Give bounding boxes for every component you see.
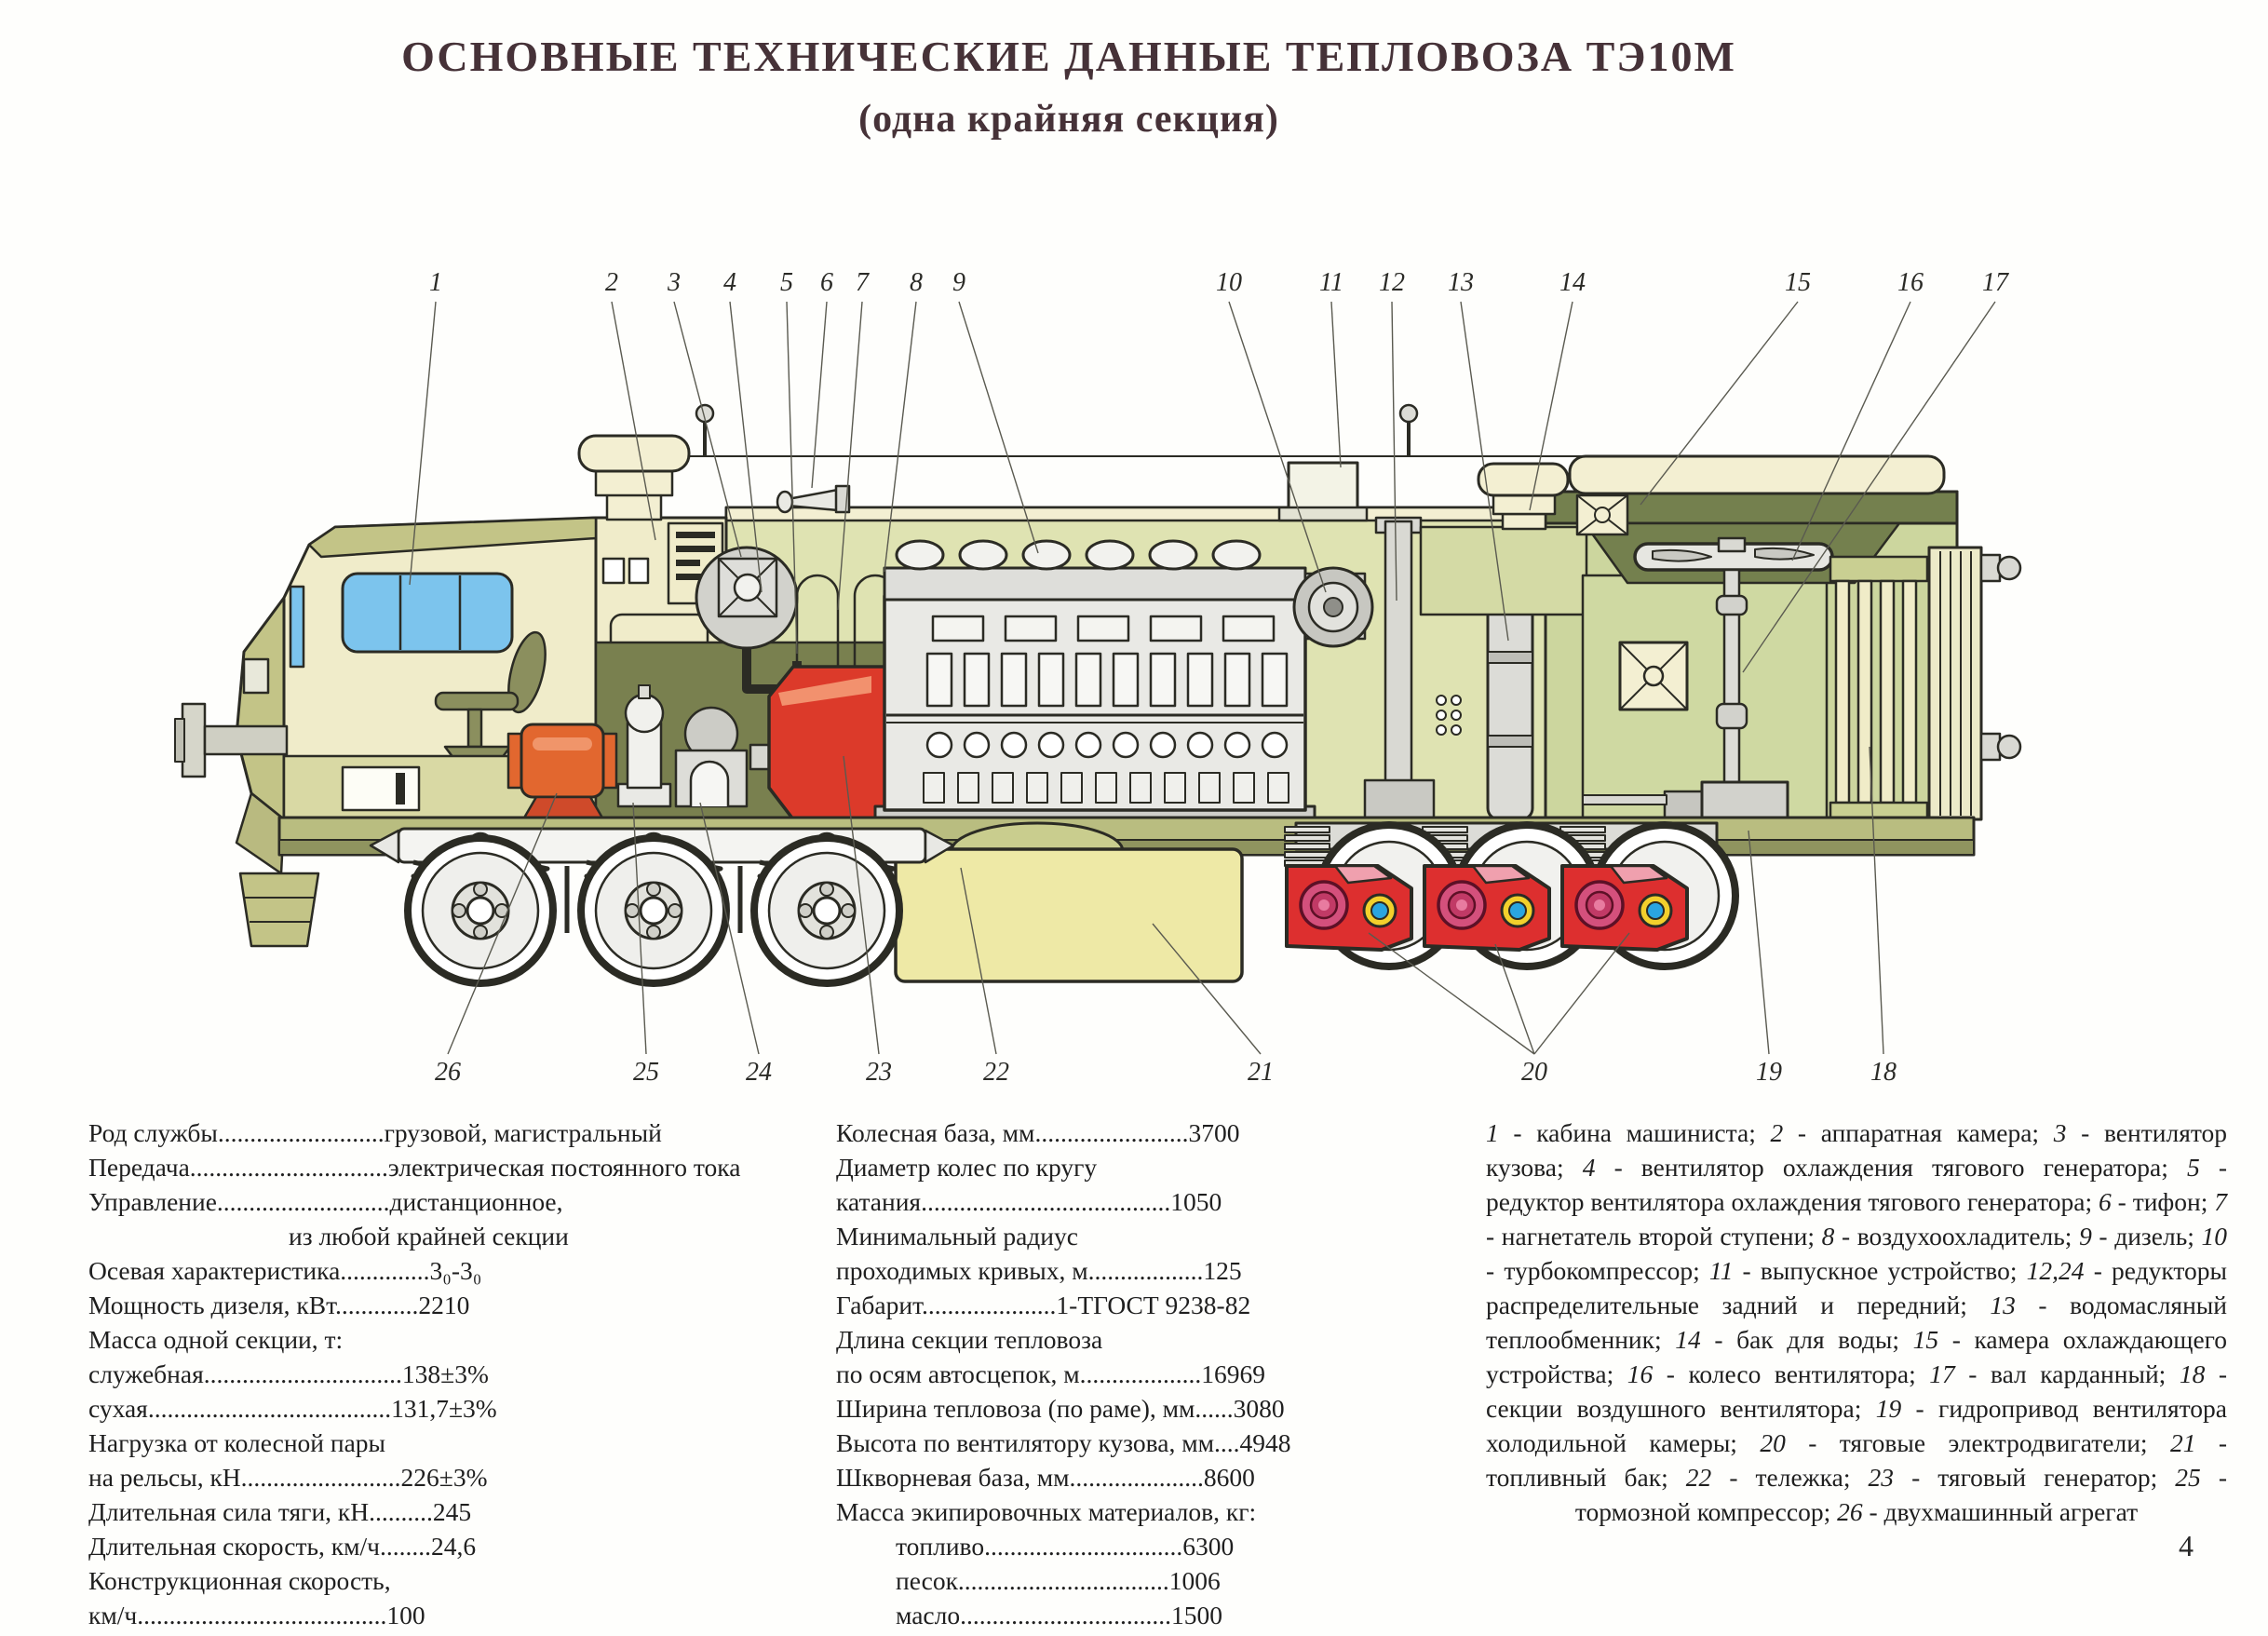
callout-number-18: 18 (1870, 1058, 1897, 1087)
leader-line-6 (812, 302, 827, 488)
roof-vent-front (579, 436, 689, 520)
legend-label: - вентилятор охлаждения тягового генерат… (1595, 1153, 2187, 1182)
page-number: 4 (2179, 1529, 2194, 1563)
legend-number: 17 (1929, 1359, 1955, 1388)
legend-label: - тележка; (1711, 1463, 1868, 1492)
nose (236, 598, 284, 819)
legend-number: 21 (2170, 1428, 2196, 1457)
spec-line: Управление...........................дис… (88, 1184, 796, 1219)
cab-side-window (343, 574, 512, 652)
legend-label: - дизель; (2092, 1222, 2202, 1251)
callout-number-8: 8 (910, 268, 923, 297)
callout-number-20: 20 (1521, 1058, 1547, 1087)
legend-number: 25 (2175, 1463, 2201, 1492)
spec-line: Осевая характеристика..............3₀-3₀ (88, 1253, 796, 1288)
callout-number-23: 23 (866, 1058, 892, 1087)
spec-line: Конструкционная скорость, (88, 1563, 796, 1598)
spec-line: Масса экипировочных материалов, кг: (836, 1494, 1432, 1529)
spec-line: на рельсы, кН.........................22… (88, 1460, 796, 1494)
water-tank (1421, 464, 1586, 615)
legend-label: - тяговый генератор; (1894, 1463, 2175, 1492)
spec-line: Минимальный радиус (836, 1219, 1432, 1253)
leader-line-19 (1748, 831, 1769, 1054)
callout-number-16: 16 (1897, 268, 1924, 297)
legend-number: 23 (1869, 1463, 1895, 1492)
spec-line: Нагрузка от колесной пары (88, 1426, 796, 1460)
spec-line: Длительная сила тяги, кН..........245 (88, 1494, 796, 1529)
spec-line: Шкворневая база, мм.....................… (836, 1460, 1432, 1494)
spec-line: масло.................................15… (836, 1598, 1432, 1632)
spec-line: Тип тележки............................б… (88, 1632, 796, 1636)
legend-number: 1 (1486, 1118, 1499, 1147)
legend-label: - кабина машиниста; (1499, 1118, 1771, 1147)
spec-line: Высота по вентилятору кузова, мм....4948 (836, 1426, 1432, 1460)
legend-number: 15 (1913, 1325, 1939, 1354)
spec-line: сухая...................................… (88, 1391, 796, 1426)
specs-column-1: Род службы..........................груз… (88, 1115, 796, 1636)
callout-number-10: 10 (1216, 268, 1242, 297)
coupler-plate (182, 704, 205, 777)
legend-number: 16 (1627, 1359, 1654, 1388)
headlight (244, 659, 268, 693)
legend-number: 13 (1990, 1291, 2016, 1319)
callout-number-15: 15 (1785, 268, 1811, 297)
rear-bogie (1285, 823, 1735, 967)
legend-number: 12,24 (2027, 1256, 2085, 1285)
callout-number-5: 5 (780, 268, 793, 297)
legend-number: 3 (2054, 1118, 2067, 1147)
front-bogie (371, 829, 953, 983)
leader-line-11 (1331, 302, 1341, 467)
legend-number: 20 (1760, 1428, 1786, 1457)
legend-number: 2 (1771, 1118, 1784, 1147)
front-steps (240, 873, 318, 946)
manual-page: ОСНОВНЫЕ ТЕХНИЧЕСКИЕ ДАННЫЕ ТЕПЛОВОЗА ТЭ… (0, 0, 2268, 1636)
legend-number: 6 (2099, 1187, 2112, 1216)
legend-label: - нагнетатель второй ступени; (1486, 1222, 1822, 1251)
callout-number-26: 26 (435, 1058, 461, 1087)
diesel-engine (875, 541, 1315, 844)
legend-label: - колесо вентилятора; (1653, 1359, 1929, 1388)
spec-line: по осям автосцепок, м...................… (836, 1357, 1432, 1391)
callout-number-24: 24 (746, 1058, 772, 1087)
cab-front-window (290, 587, 304, 667)
legend-number: 4 (1583, 1153, 1596, 1182)
callout-number-19: 19 (1756, 1058, 1782, 1087)
roof-post-ball (1400, 405, 1417, 422)
legend-label: - выпускное устройство; (1733, 1256, 2026, 1285)
legend-label: - бак для воды; (1701, 1325, 1913, 1354)
legend-number: 9 (2079, 1222, 2092, 1251)
callout-number-14: 14 (1559, 268, 1586, 297)
spec-line: Длина секции тепловоза (836, 1322, 1432, 1357)
turbocharger (1294, 568, 1372, 646)
spec-line: вода..................................14… (836, 1632, 1432, 1636)
legend-label: - аппаратная камера; (1783, 1118, 2054, 1147)
callout-number-1: 1 (429, 268, 442, 297)
legend-number: 11 (1709, 1256, 1733, 1285)
callout-number-6: 6 (820, 268, 833, 297)
legend-label: - воздухоохладитель; (1834, 1222, 2079, 1251)
spec-line: служебная...............................… (88, 1357, 796, 1391)
callout-number-11: 11 (1319, 268, 1343, 297)
callout-number-9: 9 (952, 268, 965, 297)
spec-line: катания.................................… (836, 1184, 1432, 1219)
callout-number-25: 25 (633, 1058, 659, 1087)
legend-number: 10 (2202, 1222, 2228, 1251)
spec-line: Мощность дизеля, кВт.............2210 (88, 1288, 796, 1322)
spec-line: Диаметр колес по кругу (836, 1150, 1432, 1184)
legend-label: - тяговые электродвигатели; (1786, 1428, 2170, 1457)
specs-column-2: Колесная база, мм.......................… (836, 1115, 1432, 1636)
callout-number-3: 3 (667, 268, 681, 297)
legend-number: 19 (1876, 1394, 1902, 1423)
spec-line: Длительная скорость, км/ч........24,6 (88, 1529, 796, 1563)
callout-number-4: 4 (723, 268, 736, 297)
callout-number-21: 21 (1248, 1058, 1274, 1087)
legend-number: 5 (2187, 1153, 2200, 1182)
spec-line: из любой крайней секции (88, 1219, 796, 1253)
legend-label: - тифон; (2112, 1187, 2214, 1216)
fan-wheel (1635, 538, 1832, 570)
legend-number: 22 (1686, 1463, 1712, 1492)
horn (777, 486, 849, 512)
callout-number-2: 2 (605, 268, 618, 297)
spec-line: км/ч....................................… (88, 1598, 796, 1632)
locomotive-body (175, 405, 2020, 983)
legend-number: 18 (2180, 1359, 2206, 1388)
spec-line: Габарит.....................1-ТГОСТ 9238… (836, 1288, 1432, 1322)
legend-label: - вал карданный; (1955, 1359, 2180, 1388)
spec-line: Колесная база, мм.......................… (836, 1115, 1432, 1150)
spec-line: песок.................................10… (836, 1563, 1432, 1598)
legend-number: 26 (1837, 1497, 1863, 1526)
callout-number-12: 12 (1379, 268, 1405, 297)
spec-line: Передача...............................э… (88, 1150, 796, 1184)
spec-line: Ширина тепловоза (по раме), мм......3080 (836, 1391, 1432, 1426)
legend-number: 14 (1675, 1325, 1701, 1354)
callout-number-17: 17 (1982, 268, 2009, 297)
coupler-shank (205, 726, 287, 754)
diagram-legend: 1 - кабина машиниста; 2 - аппаратная кам… (1486, 1115, 2227, 1529)
spec-line: топливо...............................63… (836, 1529, 1432, 1563)
spec-line: Род службы..........................груз… (88, 1115, 796, 1150)
callout-number-22: 22 (983, 1058, 1009, 1087)
callout-number-7: 7 (856, 268, 870, 297)
spec-line: проходимых кривых, м..................12… (836, 1253, 1432, 1288)
legend-label: - двухмашинный агрегат (1863, 1497, 2139, 1526)
callout-number-13: 13 (1448, 268, 1474, 297)
legend-number: 7 (2214, 1187, 2227, 1216)
legend-number: 8 (1822, 1222, 1835, 1251)
spec-line: Масса одной секции, т: (88, 1322, 796, 1357)
legend-label: - турбокомпрессор; (1486, 1256, 1709, 1285)
